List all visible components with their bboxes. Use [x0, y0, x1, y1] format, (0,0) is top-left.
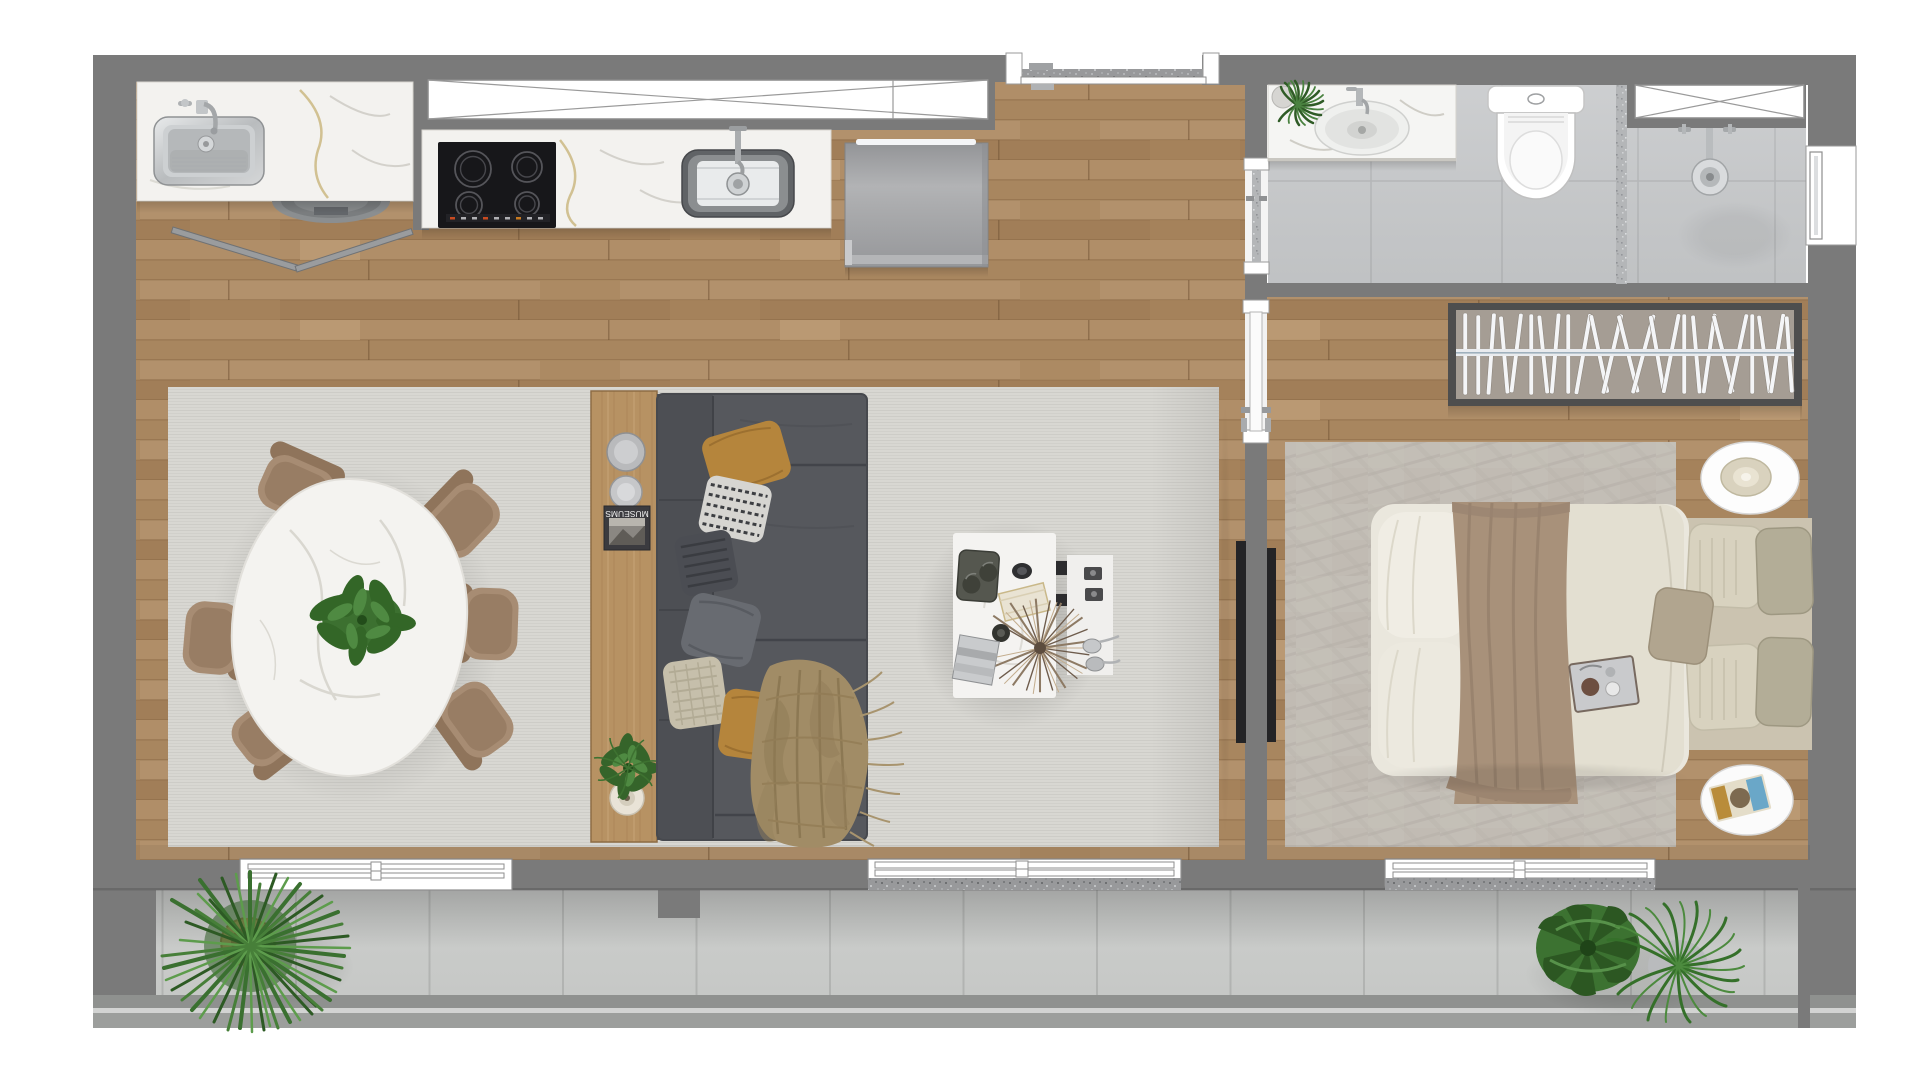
- svg-text:MUSEUMS: MUSEUMS: [605, 509, 649, 519]
